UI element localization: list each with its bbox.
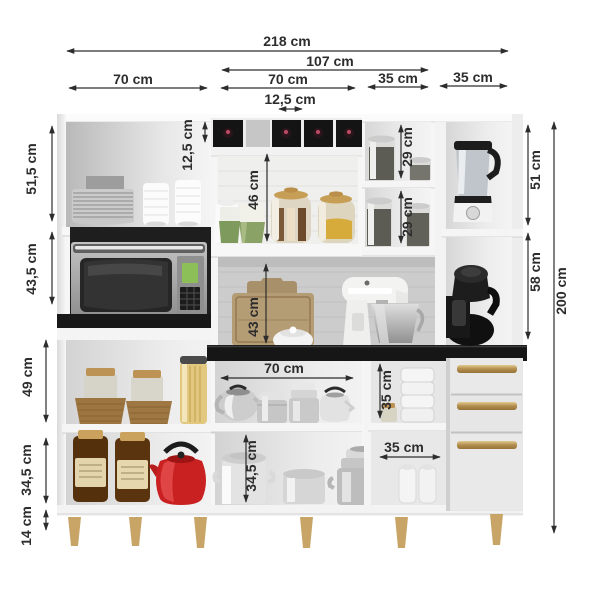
- svg-text:51,5 cm: 51,5 cm: [23, 143, 39, 194]
- svg-text:46 cm: 46 cm: [245, 170, 261, 210]
- svg-text:58 cm: 58 cm: [527, 252, 543, 292]
- svg-text:70 cm: 70 cm: [113, 71, 153, 87]
- svg-text:70 cm: 70 cm: [268, 71, 308, 87]
- svg-text:200 cm: 200 cm: [553, 267, 569, 314]
- svg-text:70 cm: 70 cm: [264, 360, 304, 376]
- svg-text:43,5 cm: 43,5 cm: [23, 243, 39, 294]
- svg-text:29 cm: 29 cm: [399, 197, 415, 237]
- svg-text:35 cm: 35 cm: [384, 439, 424, 455]
- svg-text:35 cm: 35 cm: [378, 70, 418, 86]
- svg-text:34,5 cm: 34,5 cm: [18, 444, 34, 495]
- svg-text:35 cm: 35 cm: [378, 370, 394, 410]
- svg-text:12,5 cm: 12,5 cm: [264, 91, 315, 107]
- svg-text:49 cm: 49 cm: [19, 357, 35, 397]
- svg-text:34,5 cm: 34,5 cm: [243, 440, 259, 491]
- svg-text:35 cm: 35 cm: [453, 69, 493, 85]
- svg-text:29 cm: 29 cm: [399, 127, 415, 167]
- svg-text:218 cm: 218 cm: [263, 33, 310, 49]
- svg-text:14 cm: 14 cm: [18, 506, 34, 546]
- svg-text:107 cm: 107 cm: [306, 53, 353, 69]
- svg-text:12,5 cm: 12,5 cm: [179, 119, 195, 170]
- svg-text:43 cm: 43 cm: [245, 297, 261, 337]
- svg-text:51 cm: 51 cm: [527, 150, 543, 190]
